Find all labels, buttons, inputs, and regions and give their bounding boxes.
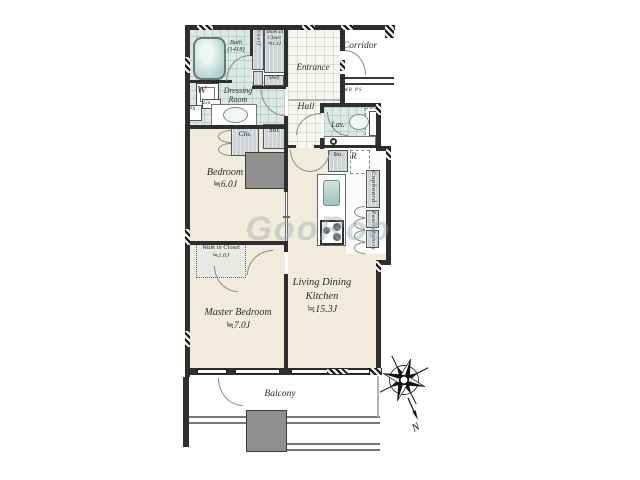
bath-label-size: (1418) (220, 46, 252, 53)
shelf-box: Shelf (264, 75, 284, 86)
wall-balcony-left (183, 377, 189, 447)
entrance-label: Entrance (288, 62, 338, 72)
wall-right-lower (376, 260, 381, 370)
hall-label: Hall (291, 102, 321, 113)
corridor-edge-wall (345, 77, 394, 85)
hatch-mark (197, 25, 213, 30)
wall-top (185, 25, 395, 30)
shoes-closet-line1: Shoes in (266, 30, 283, 35)
hatch-mark (341, 25, 353, 30)
shoes-in-closet: Shoes in Closet ≒1.1J (264, 29, 285, 73)
wall-right-mid (386, 148, 391, 265)
sliding-door-tick (283, 216, 290, 218)
compass-north-label: N (409, 420, 423, 435)
wall-center-a (284, 25, 288, 87)
bedroom-label: Bedroom (188, 167, 262, 179)
ldk-label-line2: Kitchen (272, 291, 372, 303)
wall-bedroom-master (185, 241, 288, 245)
hatch-mark (185, 229, 190, 245)
balcony-right-line (377, 376, 379, 417)
cupboard: Cupboard (366, 170, 380, 208)
hatch-mark (185, 331, 190, 347)
hatch-mark (185, 57, 190, 73)
shelf-label: Shelf (255, 30, 261, 46)
dressing-line1: Dressing (214, 86, 262, 95)
shelf-column: Shelf (252, 29, 264, 70)
vanity-basin (223, 107, 248, 123)
kitchen-sink (323, 180, 340, 206)
stove-burner (323, 227, 330, 234)
cupboard-label: Cupboard (370, 171, 376, 203)
storage-kitchen: Sto. (328, 150, 348, 172)
balcony-rail-lower (287, 443, 380, 451)
toilet-bowl (349, 114, 369, 130)
lavatory-drain (330, 138, 337, 145)
ps-box: PS (188, 105, 202, 121)
pantry-upper: Pantry (366, 210, 379, 228)
hatch-mark (376, 261, 381, 272)
walkin-size: ≒1.0J (213, 252, 229, 259)
storage-kitchen-label: Sto. (333, 151, 343, 158)
hatch-mark (376, 104, 381, 115)
pantry-label: Pantry (370, 231, 375, 251)
hatch-mark (302, 25, 315, 30)
refrigerator-label: R (351, 151, 357, 161)
shelf-label: Shelf (269, 76, 279, 81)
floor-plan: W PS Lin. Shelf Shoes in Closet ≒1.1J Sh… (0, 0, 640, 480)
wall-hall-south-a (288, 145, 296, 148)
shelf-small-box (253, 71, 263, 86)
wall-bath-bottom (185, 80, 232, 83)
dressing-label: Dressing Room (214, 86, 262, 104)
wall-hall-south-b (314, 145, 342, 148)
master-window-1 (197, 369, 227, 374)
entrance-step-line (288, 99, 340, 101)
stove-burner (333, 233, 341, 241)
stove-burner (333, 223, 341, 231)
walkin-line2: Closet (223, 244, 240, 251)
lavatory-label: Lav. (327, 120, 349, 129)
washing-machine-label: W (197, 84, 206, 96)
ldk-label-line1: Living Dining (272, 277, 372, 289)
ldk-size: ≒15.3J (272, 304, 372, 316)
wall-lav-top (320, 103, 381, 107)
master-window-2 (235, 369, 280, 374)
shoes-closet-line2: Closet (268, 36, 281, 41)
bath-label-line1: Bath (220, 39, 252, 46)
front-door-arc (345, 50, 366, 75)
ldk-window-hatch (327, 369, 348, 374)
compass-rose: N (374, 354, 436, 442)
hatch-mark (385, 25, 394, 38)
bedroom-size: ≒6.0J (188, 180, 262, 191)
pantry-lower: Pantry (366, 230, 379, 248)
pantry-label: Pantry (370, 211, 375, 231)
hatch-mark (386, 149, 391, 160)
corridor-label: Corridor (336, 41, 384, 52)
balcony-block (246, 410, 287, 452)
sliding-door (285, 192, 288, 244)
mb-ps-label: MB PS (338, 88, 368, 94)
balcony-label: Balcony (243, 389, 317, 400)
dressing-line2: Room (214, 95, 262, 104)
walkin-line1: Walk in (202, 244, 221, 251)
wall-center-c (284, 244, 288, 252)
wall-bedroom-top (185, 125, 288, 129)
shoes-closet-size: ≒1.1J (268, 42, 281, 47)
balcony-door-arc (218, 378, 243, 406)
bath-label: Bath (1418) (220, 39, 252, 54)
master-bedroom-size: ≒7.0J (186, 321, 290, 332)
closet-label: Clo. (239, 129, 252, 138)
